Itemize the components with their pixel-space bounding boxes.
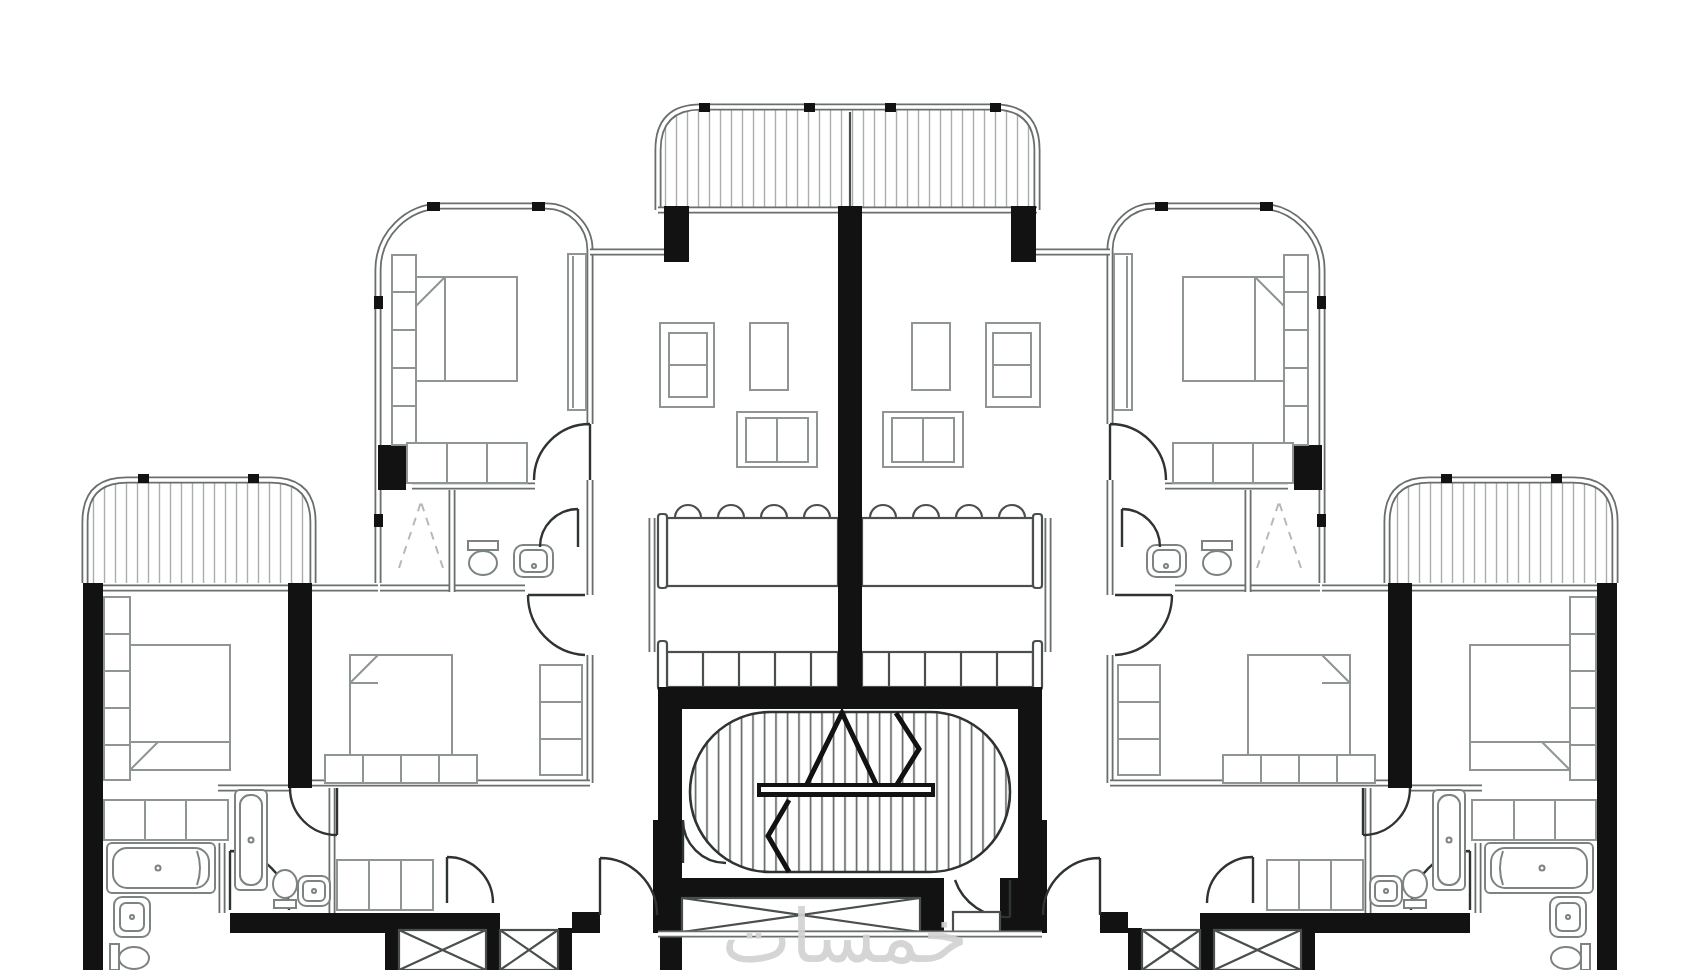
center-spine-wall xyxy=(838,206,862,690)
floor-plan-canvas: خمسات xyxy=(0,0,1700,970)
window-tick xyxy=(990,103,1001,112)
window-tick xyxy=(885,103,896,112)
window-tick xyxy=(699,103,710,112)
scissor-stair xyxy=(690,712,1010,872)
floor-plan-page: خمسات xyxy=(0,0,1700,970)
watermark-text: خمسات xyxy=(722,893,969,970)
window-tick xyxy=(804,103,815,112)
